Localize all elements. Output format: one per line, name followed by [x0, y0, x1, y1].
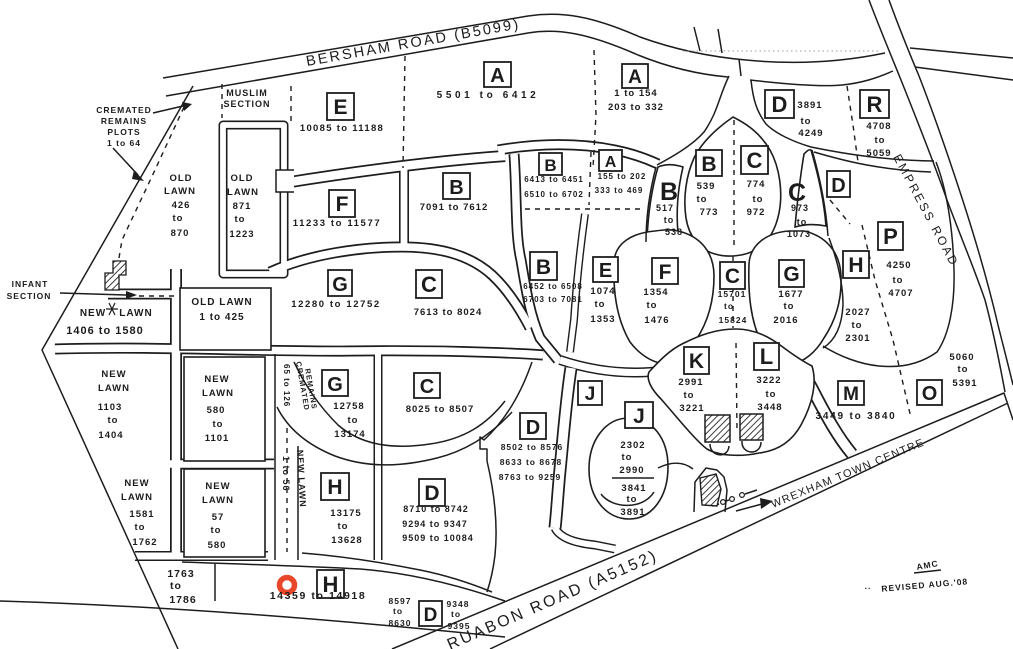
svg-text:1 to 56: 1 to 56 [281, 456, 291, 492]
svg-text:3449 to 3840: 3449 to 3840 [815, 411, 896, 422]
svg-text:8502 to 8576: 8502 to 8576 [501, 442, 564, 452]
svg-text:D: D [424, 482, 439, 505]
svg-text:9509 to 10084: 9509 to 10084 [402, 533, 474, 543]
svg-text:3891: 3891 [797, 100, 822, 111]
svg-text:8630: 8630 [389, 618, 412, 628]
svg-text:6510 to 6702: 6510 to 6702 [524, 190, 584, 199]
svg-text:1406 to 1580: 1406 to 1580 [66, 325, 143, 337]
svg-text:3891: 3891 [620, 507, 645, 518]
svg-text:to: to [664, 215, 675, 225]
svg-text:E: E [333, 96, 347, 119]
svg-text:1677: 1677 [778, 289, 803, 300]
svg-text:13628: 13628 [331, 535, 362, 546]
svg-text:3221: 3221 [679, 403, 704, 414]
svg-text:6452 to 6508: 6452 to 6508 [523, 282, 583, 291]
svg-text:R: R [867, 92, 883, 117]
svg-text:4707: 4707 [888, 288, 913, 299]
svg-text:7091 to 7612: 7091 to 7612 [420, 202, 489, 213]
svg-text:14359 to 14918: 14359 to 14918 [270, 590, 367, 602]
svg-text:C: C [420, 376, 434, 398]
svg-text:A: A [490, 65, 504, 87]
svg-text:to: to [211, 525, 222, 536]
svg-text:B: B [536, 256, 551, 279]
svg-text:..: .. [865, 581, 872, 591]
svg-text:4250: 4250 [886, 260, 911, 271]
svg-text:580: 580 [207, 405, 226, 416]
svg-text:L: L [760, 344, 773, 369]
svg-text:1073: 1073 [787, 229, 811, 239]
svg-text:NEW: NEW [204, 374, 229, 385]
svg-text:K: K [689, 350, 704, 373]
svg-text:D: D [526, 417, 540, 439]
svg-text:4249: 4249 [798, 128, 823, 139]
svg-text:7613 to 8024: 7613 to 8024 [414, 307, 483, 318]
svg-text:B: B [701, 153, 716, 176]
svg-text:972: 972 [747, 207, 766, 218]
svg-text:13175: 13175 [330, 508, 361, 519]
svg-text:CREMATED: CREMATED [96, 105, 152, 115]
svg-text:1353: 1353 [590, 314, 615, 325]
svg-text:F: F [659, 261, 672, 284]
svg-text:G: G [332, 274, 348, 296]
svg-text:773: 773 [700, 207, 719, 218]
svg-text:13174: 13174 [334, 429, 365, 440]
svg-text:to: to [135, 522, 146, 533]
svg-text:to: to [235, 214, 246, 225]
svg-text:9348: 9348 [447, 599, 470, 609]
svg-text:5391: 5391 [952, 378, 977, 389]
svg-text:LAWN: LAWN [202, 495, 234, 506]
svg-text:to: to [348, 415, 359, 426]
svg-text:to: to [697, 194, 708, 205]
svg-text:10085 to 11188: 10085 to 11188 [300, 123, 384, 134]
svg-text:E: E [599, 260, 612, 282]
svg-text:973: 973 [791, 203, 809, 213]
svg-text:3448: 3448 [757, 402, 782, 413]
svg-text:B: B [660, 178, 678, 206]
svg-text:580: 580 [208, 540, 227, 551]
svg-text:871: 871 [233, 201, 252, 212]
svg-text:8633 to 8678: 8633 to 8678 [500, 457, 563, 467]
svg-text:3222: 3222 [756, 375, 781, 386]
svg-text:1476: 1476 [644, 315, 669, 326]
svg-text:539: 539 [697, 181, 716, 192]
svg-text:D: D [831, 175, 845, 197]
svg-text:to: to [893, 275, 904, 286]
svg-text:2027: 2027 [845, 307, 870, 318]
svg-text:to: to [451, 609, 461, 619]
svg-text:2301: 2301 [845, 333, 870, 344]
svg-text:1074: 1074 [590, 286, 615, 297]
svg-text:to: to [595, 299, 606, 310]
svg-text:774: 774 [747, 179, 766, 190]
svg-text:to: to [801, 116, 812, 127]
svg-text:2016: 2016 [773, 315, 798, 326]
svg-text:OLD: OLD [169, 173, 192, 184]
svg-text:155 to 202: 155 to 202 [598, 172, 647, 181]
svg-text:PLOTS: PLOTS [107, 127, 140, 137]
svg-text:REMAINS: REMAINS [101, 116, 147, 126]
svg-text:870: 870 [171, 228, 190, 239]
svg-text:57: 57 [212, 512, 225, 523]
svg-text:to: to [213, 419, 224, 430]
svg-text:B: B [449, 177, 463, 199]
svg-text:4708: 4708 [866, 121, 891, 132]
svg-text:NEW: NEW [80, 308, 106, 319]
svg-text:J: J [585, 384, 596, 405]
svg-text:8025 to 8507: 8025 to 8507 [406, 404, 475, 415]
svg-text:333 to 469: 333 to 469 [595, 186, 644, 195]
svg-text:to: to [875, 135, 886, 146]
svg-text:to: to [753, 194, 764, 205]
svg-text:2302: 2302 [620, 440, 645, 451]
svg-text:LAWN: LAWN [164, 186, 196, 197]
svg-text:to: to [724, 301, 734, 311]
svg-text:1763: 1763 [167, 568, 194, 580]
svg-text:12758: 12758 [333, 401, 364, 412]
svg-text:to: to [627, 494, 638, 505]
svg-text:D: D [772, 92, 788, 117]
svg-text:1354: 1354 [643, 287, 668, 298]
svg-text:D: D [424, 605, 438, 626]
svg-text:1101: 1101 [205, 433, 230, 444]
svg-text:H: H [848, 254, 863, 277]
svg-text:to: to [338, 521, 349, 532]
svg-text:5060: 5060 [949, 352, 974, 363]
svg-text:A: A [605, 154, 617, 171]
svg-text:203 to 332: 203 to 332 [608, 102, 664, 113]
svg-text:C: C [421, 272, 437, 297]
svg-text:to: to [684, 390, 695, 401]
svg-text:to: to [173, 213, 184, 224]
svg-text:538: 538 [665, 227, 683, 237]
svg-text:1786: 1786 [169, 594, 196, 606]
svg-text:6703 to 7081: 6703 to 7081 [523, 295, 583, 304]
svg-text:C: C [725, 265, 740, 288]
svg-text:5501 to 6412: 5501 to 6412 [437, 90, 540, 101]
svg-text:65 to 126: 65 to 126 [282, 364, 291, 407]
svg-text:F: F [336, 193, 349, 216]
svg-text:LAWN: LAWN [119, 308, 152, 319]
svg-text:NEW: NEW [205, 481, 230, 492]
svg-text:5059: 5059 [866, 148, 891, 159]
svg-text:to: to [784, 301, 795, 312]
svg-text:8710 to 8742: 8710 to 8742 [403, 504, 469, 514]
svg-text:11233 to 11577: 11233 to 11577 [293, 218, 381, 229]
svg-text:J: J [633, 405, 645, 428]
svg-text:to: to [393, 606, 403, 616]
svg-text:B: B [544, 156, 556, 175]
svg-text:8597: 8597 [389, 596, 412, 606]
svg-text:9294 to 9347: 9294 to 9347 [402, 519, 468, 529]
svg-text:2991: 2991 [678, 377, 703, 388]
svg-text:A: A [628, 67, 642, 88]
svg-text:517: 517 [656, 203, 674, 213]
svg-text:to: to [647, 300, 658, 311]
svg-text:6413 to 6451: 6413 to 6451 [524, 175, 584, 184]
svg-text:LAWN: LAWN [227, 187, 259, 198]
svg-text:OLD: OLD [230, 173, 253, 184]
svg-text:O: O [922, 383, 938, 405]
svg-text:1581: 1581 [129, 509, 154, 520]
svg-text:to: to [958, 364, 969, 375]
svg-text:to: to [108, 415, 119, 426]
svg-text:P: P [883, 224, 898, 249]
svg-text:1103: 1103 [98, 402, 123, 413]
svg-text:LAWN: LAWN [202, 388, 234, 399]
svg-text:G: G [327, 374, 343, 396]
svg-text:LAWN: LAWN [121, 492, 153, 503]
svg-text:MUSLIM: MUSLIM [226, 88, 268, 98]
svg-text:INFANT: INFANT [12, 279, 49, 289]
svg-text:1404: 1404 [98, 430, 123, 441]
svg-text:1762: 1762 [132, 537, 157, 548]
svg-text:1 to 154: 1 to 154 [614, 88, 657, 99]
svg-text:M: M [843, 384, 859, 405]
svg-text:SECTION: SECTION [223, 99, 270, 109]
svg-text:to: to [766, 389, 777, 400]
svg-text:NEW: NEW [124, 478, 149, 489]
svg-text:426: 426 [172, 200, 191, 211]
svg-text:to: to [797, 217, 808, 227]
svg-text:LAWN: LAWN [98, 383, 130, 394]
svg-text:G: G [783, 263, 799, 286]
svg-text:to: to [170, 580, 182, 592]
svg-text:H: H [327, 476, 342, 499]
svg-text:3841: 3841 [621, 483, 646, 494]
svg-text:15701: 15701 [718, 289, 747, 299]
svg-text:OLD LAWN: OLD LAWN [191, 297, 252, 308]
svg-text:NEW: NEW [101, 369, 126, 380]
svg-text:1 to 425: 1 to 425 [199, 312, 244, 323]
svg-text:12280 to 12752: 12280 to 12752 [291, 299, 380, 310]
svg-text:SECTION: SECTION [7, 291, 52, 301]
svg-text:to: to [852, 320, 863, 331]
svg-text:to: to [622, 452, 633, 463]
svg-text:8763 to 9259: 8763 to 9259 [499, 472, 562, 482]
svg-text:C: C [747, 148, 763, 173]
svg-text:15824: 15824 [719, 315, 748, 325]
svg-text:2990: 2990 [619, 465, 644, 476]
svg-text:1223: 1223 [229, 229, 254, 240]
svg-text:1 to 64: 1 to 64 [107, 138, 141, 148]
